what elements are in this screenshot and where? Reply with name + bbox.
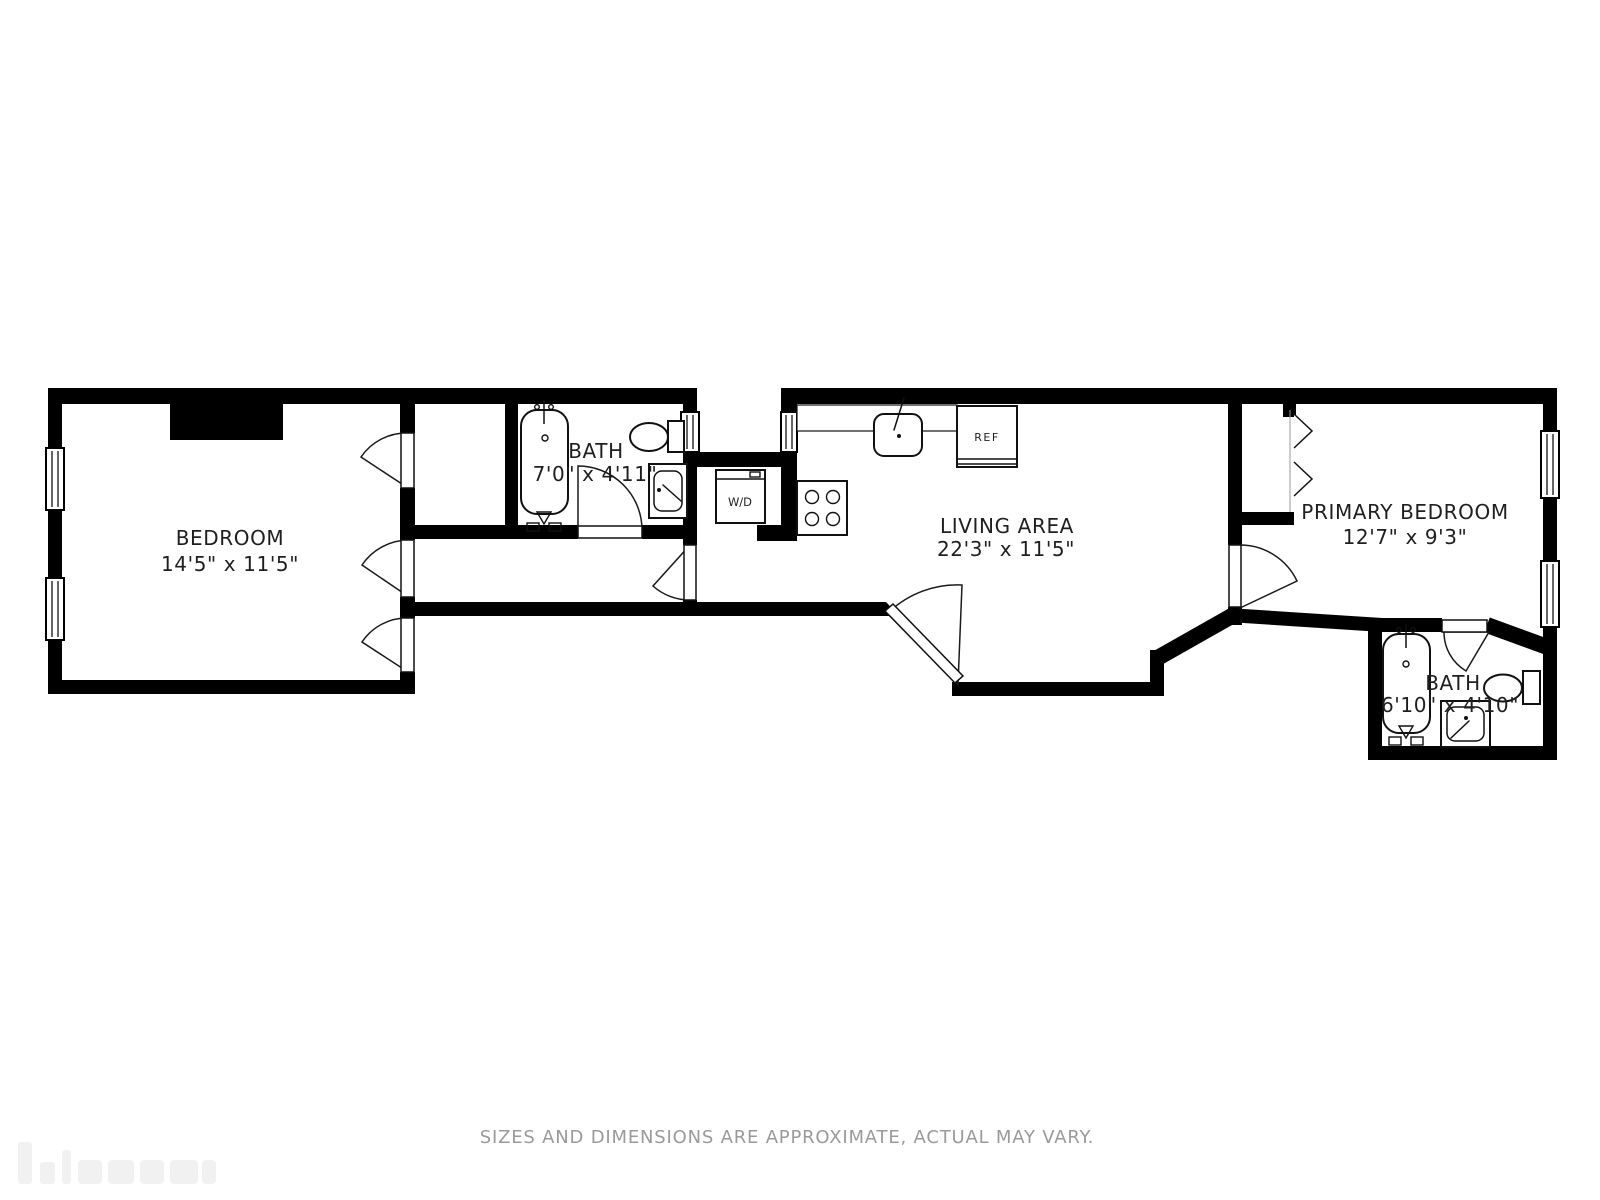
wall-diagonal-bath2 xyxy=(1487,625,1550,648)
window xyxy=(1541,561,1559,627)
room-dims-primary-bedroom: 12'7" x 9'3" xyxy=(1343,525,1468,549)
refrigerator-label: REF xyxy=(974,431,999,444)
room-label-primary-bedroom: PRIMARY BEDROOM xyxy=(1301,500,1508,524)
kitchen-counter xyxy=(797,398,957,456)
washer-dryer-label: W/D xyxy=(728,495,752,509)
floorplan-canvas: W/D REF xyxy=(0,0,1600,1200)
wall-top-left xyxy=(48,388,697,404)
wall-bedroom-bottom xyxy=(48,680,415,694)
wall-closet-right xyxy=(505,404,518,537)
washer-dryer: W/D xyxy=(716,470,765,523)
room-dims-bath-1: 7'0" x 4'11" xyxy=(533,462,658,486)
room-dims-bedroom: 14'5" x 11'5" xyxy=(161,552,299,576)
wall-hall-top-a xyxy=(400,525,578,539)
wall-pb-bottom xyxy=(1228,608,1382,632)
stove xyxy=(797,481,847,535)
room-label-living-area: LIVING AREA xyxy=(940,514,1074,538)
room-label-bedroom: BEDROOM xyxy=(176,526,285,550)
wall-pbcloset-bottom xyxy=(1228,512,1294,525)
wall-bath2-top xyxy=(1382,618,1442,632)
door-leaf xyxy=(1442,620,1487,632)
bathtub xyxy=(1383,624,1430,745)
wall-living-bottom xyxy=(952,682,1164,696)
window xyxy=(1541,431,1559,498)
door-arc xyxy=(1240,545,1297,608)
door-leaf xyxy=(401,618,414,672)
door-leaf xyxy=(578,526,642,538)
wall-bath2-left xyxy=(1368,618,1382,760)
door-leaf xyxy=(1229,545,1241,607)
wall-top-right xyxy=(781,388,1557,404)
wall-left-exterior xyxy=(48,388,62,694)
window xyxy=(46,578,64,640)
wall-segment xyxy=(400,672,415,694)
window xyxy=(781,412,797,452)
window xyxy=(46,448,64,510)
wall-bath2-bottom xyxy=(1368,746,1557,760)
room-label-bath-1: BATH xyxy=(568,439,624,463)
wall-wd-stub xyxy=(757,525,797,541)
wall-lightwell-bottom xyxy=(683,452,797,467)
bifold-chevron xyxy=(1294,414,1312,448)
watermark-logo xyxy=(18,1142,216,1184)
door-leaf xyxy=(401,540,414,597)
disclaimer-text: SIZES AND DIMENSIONS ARE APPROXIMATE, AC… xyxy=(480,1127,1094,1148)
room-dims-bath-2: 6'10" x 4'10" xyxy=(1381,693,1519,717)
door-arc xyxy=(1444,632,1489,671)
room-label-bath-2: BATH xyxy=(1425,671,1481,695)
wall-hall-bottom xyxy=(400,602,872,616)
closet-bifold-doors xyxy=(1290,410,1312,512)
bifold-chevron xyxy=(1294,462,1312,496)
refrigerator: REF xyxy=(957,406,1017,467)
door-leaf xyxy=(401,433,414,488)
room-dims-living-area: 22'3" x 11'5" xyxy=(937,537,1075,561)
floorplan-page: W/D REF xyxy=(0,0,1600,1200)
door-leaf xyxy=(684,545,696,600)
wall-segment xyxy=(400,404,415,433)
chimney-block xyxy=(170,404,283,440)
wall-diagonal-living xyxy=(1154,613,1237,660)
toilet xyxy=(630,421,684,452)
